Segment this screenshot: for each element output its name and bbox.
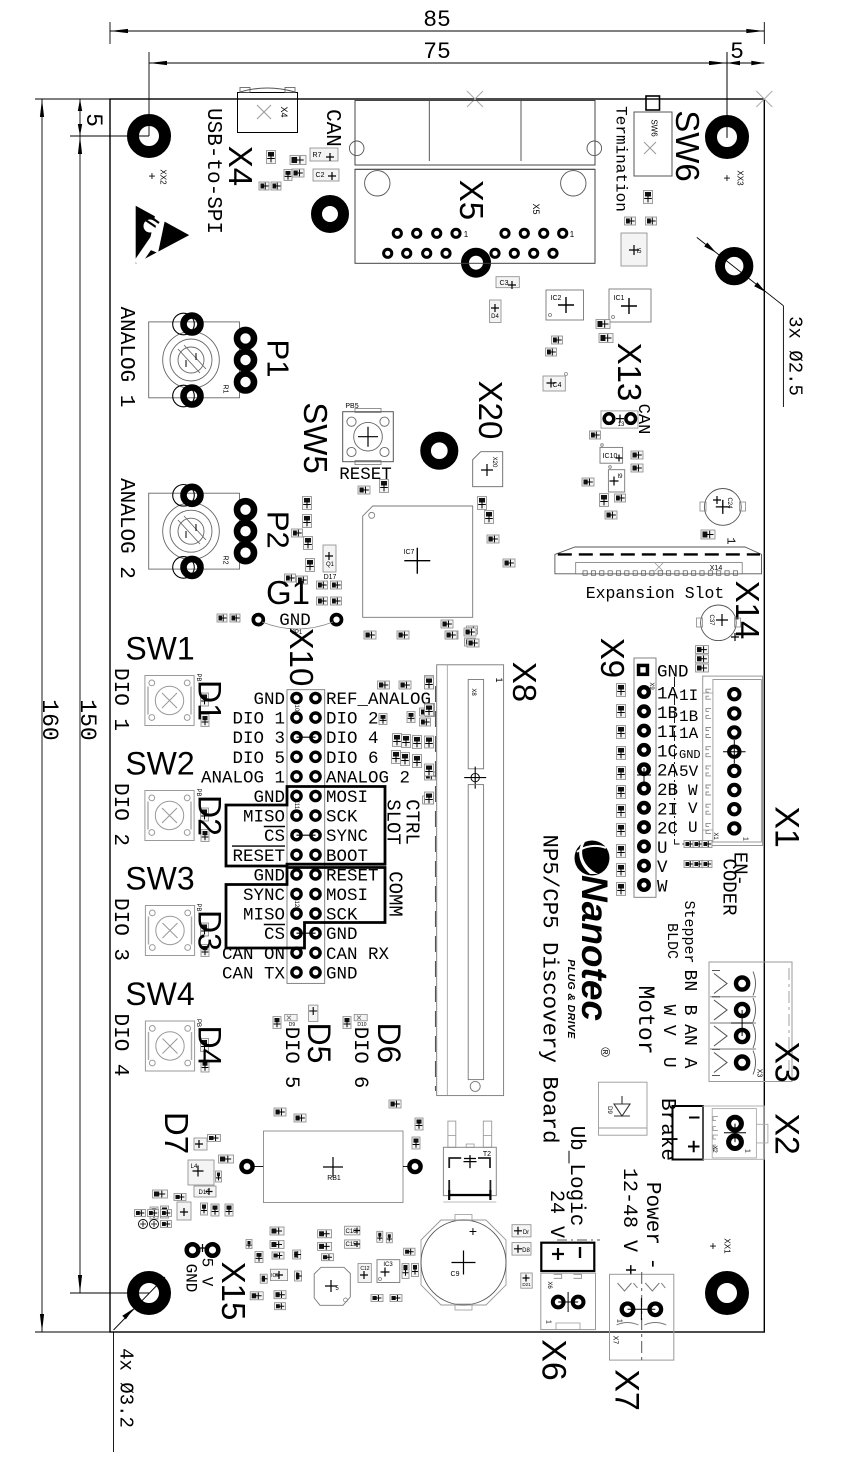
svg-text:L4: L4	[191, 1164, 198, 1170]
svg-text:V: V	[658, 1025, 678, 1036]
svg-text:C3: C3	[500, 280, 509, 287]
svg-text:X15: X15	[215, 1262, 252, 1321]
svg-text:CODER: CODER	[718, 858, 740, 915]
svg-text:1: 1	[570, 230, 575, 239]
svg-text:V: V	[688, 800, 698, 818]
svg-text:Expansion Slot: Expansion Slot	[586, 584, 725, 603]
svg-text:SW6: SW6	[649, 119, 658, 137]
svg-text:X11: X11	[293, 799, 299, 810]
svg-text:DIO 1: DIO 1	[108, 668, 131, 731]
svg-text:BN: BN	[679, 970, 699, 992]
svg-text:PLUG & DRIVE: PLUG & DRIVE	[565, 959, 577, 1039]
svg-text:DIO 2: DIO 2	[326, 710, 379, 730]
svg-text:P1: P1	[260, 340, 295, 378]
svg-text:R7: R7	[313, 152, 322, 159]
svg-text:AN: AN	[679, 1024, 699, 1046]
svg-text:MOSI: MOSI	[326, 886, 368, 906]
svg-text:GND: GND	[326, 964, 358, 984]
svg-text:X3: X3	[767, 1041, 805, 1083]
svg-text:DIO 4: DIO 4	[108, 1013, 131, 1076]
svg-text:A: A	[679, 1058, 699, 1069]
svg-text:5V: 5V	[679, 763, 699, 781]
svg-text:Termination: Termination	[612, 106, 630, 212]
svg-text:SW5: SW5	[297, 402, 334, 474]
svg-text:D1: D1	[192, 680, 228, 721]
svg-text:DIO 2: DIO 2	[108, 783, 131, 846]
svg-text:U: U	[658, 1057, 678, 1068]
svg-text:5: 5	[730, 39, 744, 65]
svg-text:XX2: XX2	[158, 169, 167, 185]
svg-text:DIO 3: DIO 3	[232, 729, 285, 749]
svg-text:1: 1	[616, 1319, 623, 1323]
svg-text:D21: D21	[522, 1282, 531, 1287]
svg-text:D7: D7	[158, 1112, 195, 1154]
svg-text:Brake: Brake	[655, 1098, 678, 1161]
svg-text:CAN TX: CAN TX	[222, 964, 286, 984]
svg-text:X2: X2	[711, 1145, 717, 1153]
svg-text:4x Ø3.2: 4x Ø3.2	[115, 1348, 137, 1428]
svg-text:X2: X2	[767, 1113, 805, 1155]
svg-text:Power -: Power -	[640, 1182, 663, 1270]
svg-text:IC2: IC2	[551, 295, 562, 302]
svg-text:Q1: Q1	[326, 562, 335, 568]
svg-text:U: U	[657, 839, 668, 859]
svg-text:R1: R1	[222, 385, 229, 394]
svg-text:X8: X8	[470, 688, 476, 696]
svg-text:DIO 5: DIO 5	[279, 1027, 302, 1089]
svg-text:1: 1	[494, 677, 504, 682]
svg-text:D17: D17	[324, 574, 337, 581]
svg-text:PB5: PB5	[345, 403, 358, 410]
svg-text:X10: X10	[283, 628, 320, 687]
svg-text:X9: X9	[648, 682, 654, 690]
svg-text:C12: C12	[360, 1266, 369, 1272]
svg-text:COMM: COMM	[384, 871, 406, 917]
svg-text:1I: 1I	[679, 687, 698, 705]
svg-text:13: 13	[618, 422, 625, 428]
svg-text:CS: CS	[264, 827, 285, 847]
svg-text:ANALOG 1: ANALOG 1	[201, 768, 285, 788]
svg-text:X1: X1	[767, 806, 805, 848]
svg-text:CAN RX: CAN RX	[326, 945, 390, 965]
svg-text:G1: G1	[266, 574, 310, 611]
svg-text:DIO 6: DIO 6	[326, 749, 379, 769]
svg-text:C9: C9	[451, 1271, 460, 1278]
svg-text:GND: GND	[253, 690, 285, 710]
svg-text:SW3: SW3	[125, 861, 194, 897]
svg-text:X7: X7	[607, 1369, 645, 1411]
svg-text:SYNC: SYNC	[243, 886, 285, 906]
svg-text:X10: X10	[293, 701, 299, 712]
svg-text:X13: X13	[611, 343, 648, 402]
svg-text:D9: D9	[606, 1106, 612, 1114]
svg-text:T2: T2	[483, 1151, 491, 1158]
svg-text:1: 1	[742, 837, 749, 841]
svg-text:1: 1	[545, 1320, 552, 1324]
svg-text:X4: X4	[222, 146, 259, 186]
svg-text:+: +	[469, 1225, 477, 1241]
svg-text:DIO 6: DIO 6	[348, 1027, 371, 1089]
svg-text:+: +	[709, 1240, 716, 1254]
svg-text:USB-to-SPI: USB-to-SPI	[201, 108, 224, 234]
svg-text:C37: C37	[708, 614, 714, 626]
svg-text:C2: C2	[316, 172, 325, 179]
svg-text:CS: CS	[264, 925, 285, 945]
svg-text:SW6: SW6	[669, 110, 706, 182]
svg-text:X8: X8	[506, 662, 543, 702]
svg-text:SW2: SW2	[125, 746, 194, 782]
svg-text:X7: X7	[612, 1336, 619, 1345]
svg-text:150: 150	[74, 699, 100, 740]
svg-text:X6: X6	[534, 1339, 572, 1381]
svg-text:1: 1	[724, 537, 738, 544]
svg-text:Motor: Motor	[632, 985, 658, 1054]
svg-text:D3: D3	[192, 910, 228, 951]
svg-text:B: B	[679, 1005, 699, 1016]
svg-text:DIO 4: DIO 4	[326, 729, 379, 749]
svg-text:IC3: IC3	[383, 1262, 393, 1268]
svg-text:DIO 1: DIO 1	[232, 710, 285, 730]
svg-text:1A: 1A	[657, 685, 679, 705]
svg-text:RESET: RESET	[326, 866, 379, 886]
svg-text:Stepper: Stepper	[680, 900, 697, 963]
svg-text:X9: X9	[594, 638, 631, 678]
svg-text:3x Ø2.5: 3x Ø2.5	[784, 316, 806, 396]
svg-text:X12: X12	[293, 897, 299, 908]
svg-text:REF_ANALOG: REF_ANALOG	[326, 690, 431, 710]
svg-text:C4: C4	[553, 382, 562, 389]
svg-text:X1: X1	[712, 832, 718, 840]
svg-text:BLDC: BLDC	[663, 923, 680, 959]
svg-text:X3: X3	[756, 1069, 763, 1078]
svg-text:RB1: RB1	[327, 1175, 341, 1182]
svg-text:1A: 1A	[679, 725, 699, 743]
svg-text:+: +	[148, 170, 155, 184]
svg-text:C15: C15	[345, 1242, 357, 1248]
svg-text:D8: D8	[522, 1248, 530, 1254]
svg-text:®: ®	[598, 1047, 613, 1057]
svg-text:IC7: IC7	[404, 549, 415, 556]
svg-text:5 V: 5 V	[198, 1258, 216, 1287]
svg-text:GND: GND	[657, 663, 689, 683]
svg-text:SW4: SW4	[125, 976, 194, 1012]
svg-text:XX3: XX3	[735, 170, 744, 186]
svg-text:D5: D5	[301, 1023, 337, 1064]
svg-text:CAN: CAN	[633, 404, 652, 435]
svg-text:Nanotec: Nanotec	[574, 875, 615, 1021]
svg-text:DIO 5: DIO 5	[232, 749, 285, 769]
svg-text:I5: I5	[636, 249, 642, 255]
svg-text:I9: I9	[617, 474, 623, 480]
svg-text:SYNC: SYNC	[326, 827, 368, 847]
svg-text:1B: 1B	[679, 708, 698, 726]
svg-text:W: W	[657, 878, 668, 898]
svg-text:MISO: MISO	[243, 906, 285, 926]
svg-text:X5: X5	[531, 203, 541, 214]
svg-text:W: W	[688, 782, 698, 800]
svg-text:SW1: SW1	[125, 631, 194, 667]
svg-text:GND: GND	[182, 1264, 200, 1293]
svg-text:RESET: RESET	[232, 847, 285, 867]
svg-text:CAN: CAN	[320, 109, 343, 147]
svg-text:+: +	[723, 172, 730, 186]
svg-text:C24: C24	[726, 497, 732, 509]
svg-text:2A: 2A	[657, 762, 679, 782]
svg-text:XX1: XX1	[722, 1238, 731, 1254]
svg-text:Dr: Dr	[523, 1230, 529, 1236]
svg-text:GND: GND	[326, 925, 358, 945]
svg-text:P2: P2	[260, 511, 295, 549]
svg-text:1: 1	[744, 1149, 751, 1153]
svg-text:R2: R2	[222, 556, 229, 565]
svg-text:D4: D4	[491, 314, 499, 320]
svg-text:SLOT: SLOT	[382, 799, 404, 845]
svg-text:MISO: MISO	[243, 808, 285, 828]
svg-text:X20: X20	[472, 381, 509, 440]
svg-text:5: 5	[80, 113, 106, 127]
svg-text:IC1: IC1	[614, 295, 625, 302]
svg-text:D2: D2	[192, 795, 228, 836]
svg-text:160: 160	[36, 699, 62, 740]
svg-text:IC5: IC5	[271, 1273, 279, 1279]
svg-text:IC10: IC10	[603, 453, 618, 460]
svg-text:SCK: SCK	[326, 808, 358, 828]
svg-text:X5: X5	[453, 180, 490, 220]
svg-text:GND: GND	[679, 748, 701, 762]
svg-text:MOSI: MOSI	[326, 788, 368, 808]
svg-text:ANALOG 2: ANALOG 2	[114, 478, 137, 579]
svg-text:75: 75	[423, 39, 451, 65]
svg-text:V: V	[657, 858, 668, 878]
svg-text:D4: D4	[192, 1026, 228, 1067]
svg-text:ANALOG 1: ANALOG 1	[114, 307, 137, 408]
svg-text:D6: D6	[371, 1023, 407, 1064]
svg-text:24 V: 24 V	[544, 1190, 567, 1238]
svg-text:X6: X6	[546, 1281, 552, 1289]
svg-text:U: U	[688, 819, 698, 837]
svg-text:12-48 V +: 12-48 V +	[617, 1168, 640, 1276]
svg-text:NP5/CP5 Discovery Board: NP5/CP5 Discovery Board	[536, 834, 562, 1143]
svg-text:DIO 3: DIO 3	[108, 898, 131, 961]
svg-text:1: 1	[464, 230, 469, 239]
svg-text:X4: X4	[279, 106, 289, 117]
svg-text:85: 85	[423, 7, 451, 33]
svg-text:W: W	[658, 1005, 678, 1016]
svg-text:X20: X20	[491, 457, 497, 468]
